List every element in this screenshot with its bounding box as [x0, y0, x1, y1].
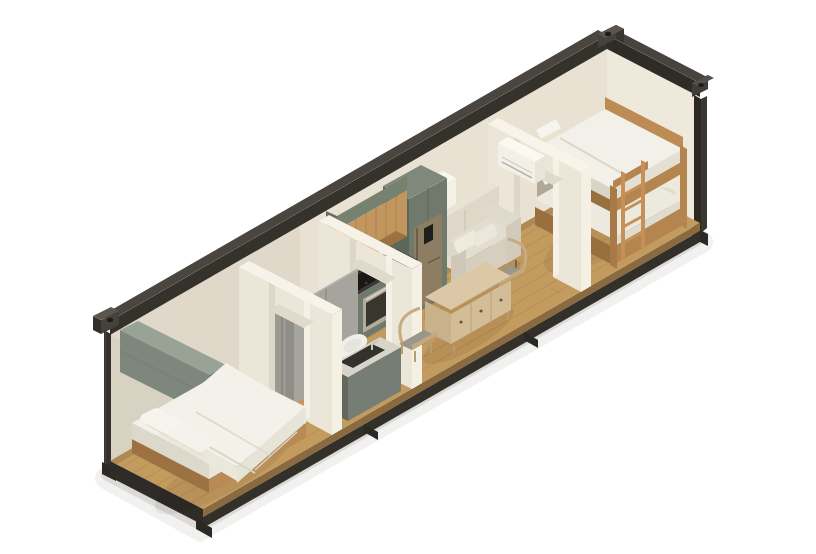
- right-corner-post-a: [694, 95, 701, 233]
- walla-front-cap: [332, 309, 342, 435]
- wallb-front-cap: [412, 263, 422, 389]
- right-corner-post-b: [701, 96, 707, 233]
- walla-jamb-right: [269, 279, 275, 402]
- bunk-post-front: [610, 185, 617, 269]
- wallc-jamb-left: [553, 154, 559, 277]
- walla-jamb-left: [304, 297, 310, 420]
- isometric-scene: Isometric cutaway rendering of a shippin…: [0, 0, 816, 554]
- wallc-front-cap: [581, 166, 591, 292]
- bunk-post-right: [680, 145, 687, 229]
- container-home-render: Isometric cutaway rendering of a shippin…: [0, 0, 816, 554]
